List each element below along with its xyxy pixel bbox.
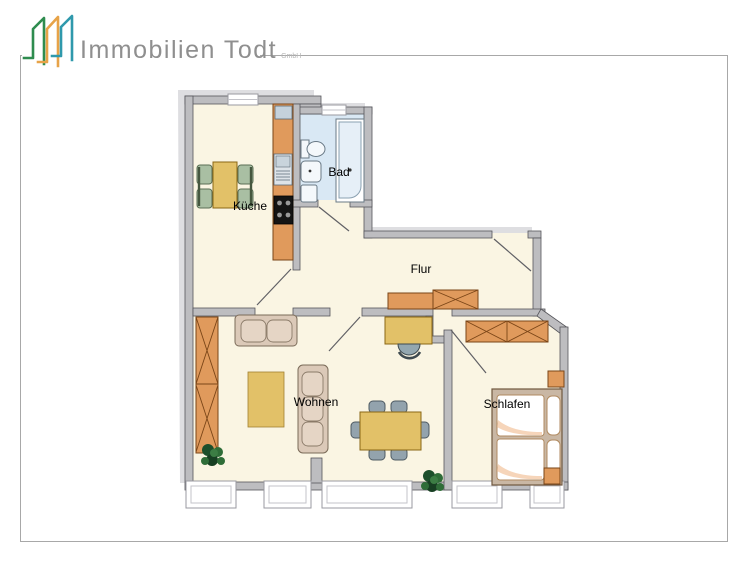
room-label-wohnen: Wohnen <box>294 395 338 409</box>
dining-table <box>360 412 421 450</box>
nightstand-bottom <box>544 468 560 484</box>
coffee-table <box>248 372 284 427</box>
company-name: Immobilien TodtGmbH <box>80 36 301 65</box>
desk <box>385 317 432 344</box>
living-wardrobe <box>196 317 218 453</box>
bath-sink <box>301 161 321 182</box>
room-label-bad: Bad <box>328 165 349 179</box>
toilet <box>301 140 325 158</box>
bathtub <box>336 119 364 202</box>
kitchen-sink <box>275 106 292 119</box>
page: Immobilien TodtGmbH <box>0 0 748 561</box>
fridge <box>274 154 292 185</box>
company-name-text: Immobilien Todt <box>80 36 277 64</box>
houses-logo-icon <box>22 6 78 68</box>
dining-chair <box>369 401 385 413</box>
sofa-2seat <box>235 315 297 346</box>
room-label-schlafen: Schlafen <box>484 397 531 411</box>
hall-sideboard <box>388 293 433 309</box>
sofa-3seat <box>298 365 328 453</box>
company-suffix: GmbH <box>281 53 301 60</box>
floorplan <box>0 0 748 561</box>
room-label-kueche: Küche <box>233 199 267 213</box>
hall-wardrobe <box>433 290 478 309</box>
bath-unit <box>301 185 317 202</box>
stove <box>274 196 293 224</box>
pillow <box>547 396 560 435</box>
bedroom-wardrobe <box>466 321 548 342</box>
kitchen-counter <box>273 104 293 260</box>
nightstand-top <box>548 371 564 387</box>
dining-chair <box>391 401 407 413</box>
company-logo: Immobilien TodtGmbH <box>22 6 260 68</box>
room-label-flur: Flur <box>411 262 432 276</box>
